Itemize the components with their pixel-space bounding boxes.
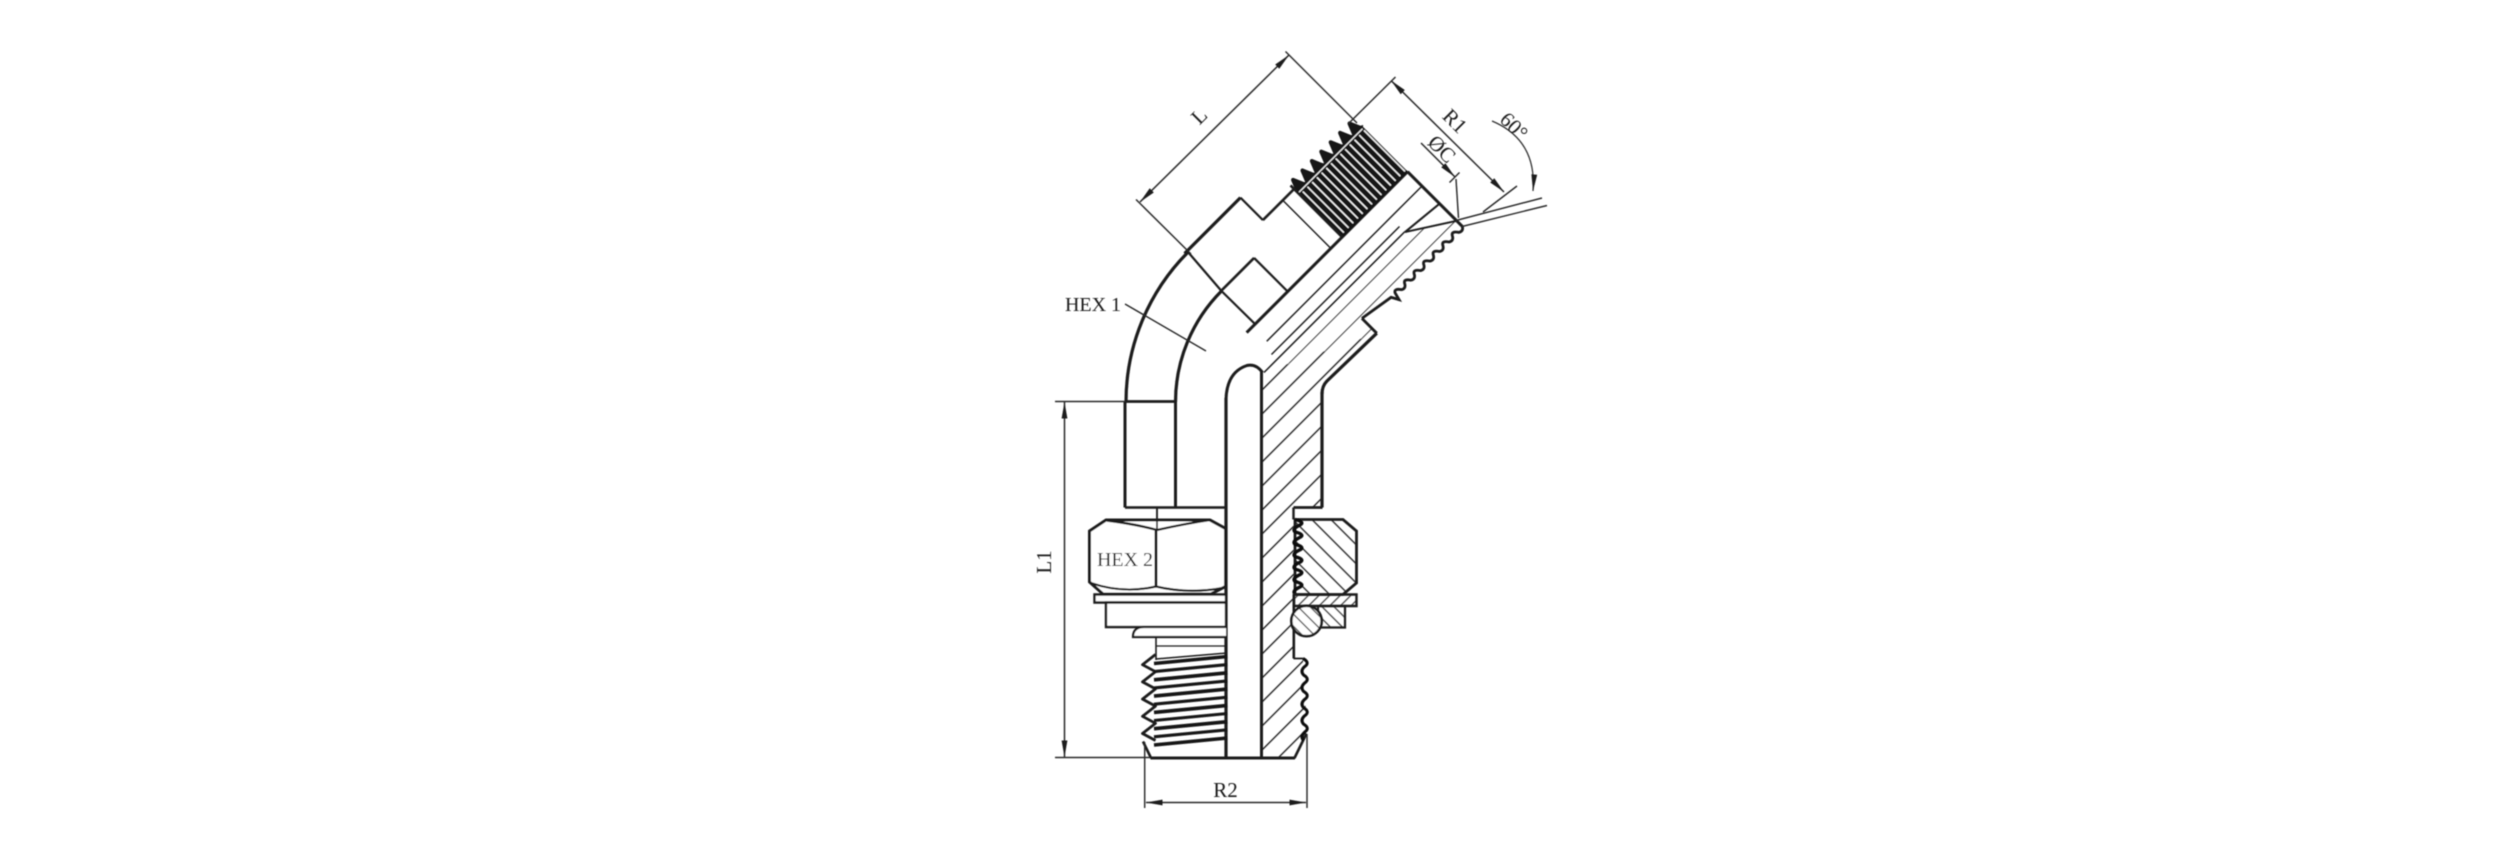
svg-text:HEX 2: HEX 2 (1097, 549, 1153, 571)
svg-text:R2: R2 (1213, 778, 1238, 802)
svg-text:HEX 1: HEX 1 (1065, 294, 1121, 316)
svg-text:L1: L1 (1032, 550, 1056, 573)
